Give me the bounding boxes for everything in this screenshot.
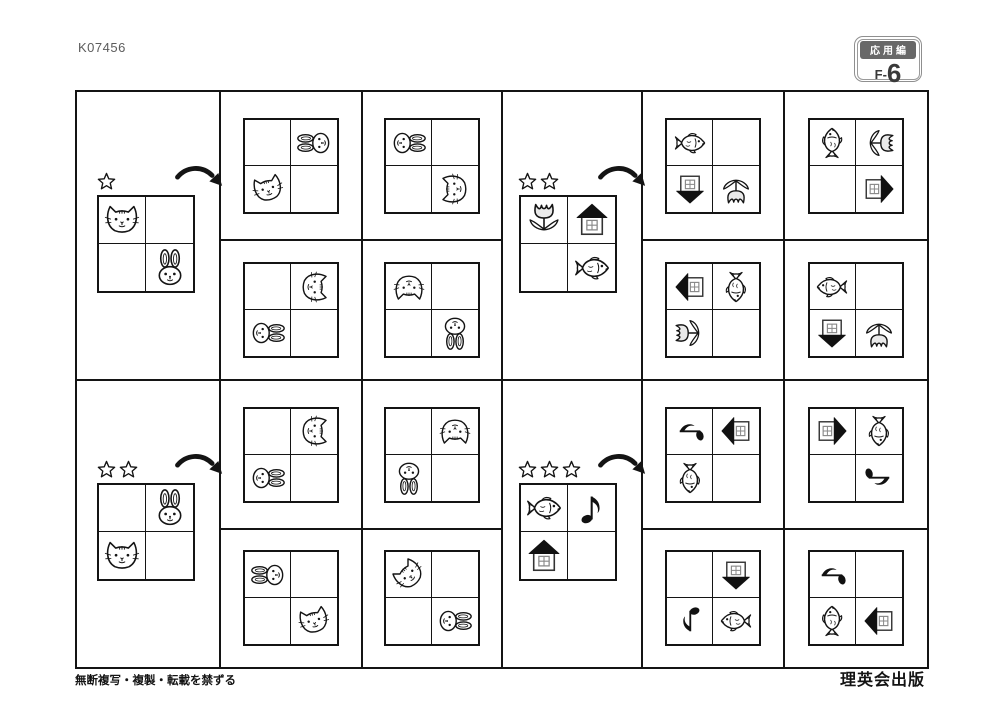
rabbit-icon — [251, 558, 285, 592]
cat-icon — [438, 414, 472, 448]
puzzle-4-problem — [502, 380, 645, 668]
fish-icon — [673, 126, 707, 160]
answer-grid — [243, 407, 339, 503]
worksheet-code: K07456 — [78, 40, 126, 55]
grid-cell — [99, 244, 146, 291]
answer-grid — [384, 550, 480, 646]
badge-level-number: 6 — [887, 58, 901, 88]
note-icon — [673, 604, 707, 638]
level-badge: 応用編 F-6 — [854, 36, 922, 82]
answer-grid — [519, 195, 617, 293]
grid-cell — [245, 310, 291, 356]
puzzle-2-option-4[interactable] — [784, 240, 927, 380]
grid-cell — [713, 120, 759, 166]
puzzle-3-option-1[interactable] — [220, 380, 362, 529]
fish-icon — [673, 461, 707, 495]
grid-cell — [432, 552, 478, 598]
answer-grid — [808, 118, 904, 214]
difficulty-stars — [97, 460, 138, 479]
grid-cell — [810, 120, 856, 166]
answer-grid — [243, 550, 339, 646]
answer-grid — [97, 483, 195, 581]
rotate-clockwise-arrow-icon — [174, 451, 226, 488]
grid-cell — [667, 310, 713, 356]
worksheet-grid — [75, 90, 929, 669]
grid-cell — [810, 264, 856, 310]
grid-cell — [386, 455, 432, 501]
badge-level-prefix: F- — [875, 67, 887, 82]
rabbit-icon — [151, 249, 189, 287]
house-icon — [815, 414, 849, 448]
house-icon — [673, 270, 707, 304]
cat-icon — [438, 172, 472, 206]
grid-cell — [713, 598, 759, 644]
grid-cell — [432, 598, 478, 644]
grid-cell — [856, 264, 902, 310]
grid-cell — [810, 598, 856, 644]
grid-cell — [386, 264, 432, 310]
puzzle-1-problem — [77, 92, 220, 380]
grid-cell — [386, 310, 432, 356]
grid-cell — [99, 532, 146, 579]
star-icon — [518, 172, 537, 191]
rabbit-icon — [251, 461, 285, 495]
grid-cell — [667, 120, 713, 166]
tulip-icon — [525, 201, 563, 239]
answer-grid — [808, 407, 904, 503]
rabbit-icon — [151, 489, 189, 527]
fish-icon — [862, 414, 896, 448]
badge-category-label: 応用編 — [860, 41, 916, 59]
puzzle-1-option-2[interactable] — [362, 92, 502, 240]
fish-icon — [815, 270, 849, 304]
grid-cell — [146, 532, 193, 579]
grid-cell — [432, 166, 478, 212]
grid-cell — [856, 409, 902, 455]
answer-grid — [808, 550, 904, 646]
note-icon — [862, 461, 896, 495]
grid-cell — [146, 197, 193, 244]
grid-cell — [432, 409, 478, 455]
grid-cell — [810, 166, 856, 212]
grid-cell — [521, 485, 568, 532]
answer-grid — [384, 118, 480, 214]
grid-cell — [856, 455, 902, 501]
grid-cell — [856, 120, 902, 166]
puzzle-2-option-2[interactable] — [784, 92, 927, 240]
star-icon — [540, 460, 559, 479]
grid-cell — [245, 120, 291, 166]
grid-cell — [713, 310, 759, 356]
grid-cell — [386, 120, 432, 166]
grid-cell — [667, 409, 713, 455]
rabbit-icon — [297, 126, 331, 160]
note-icon — [673, 414, 707, 448]
cat-icon — [297, 414, 331, 448]
cat-icon — [384, 550, 432, 598]
fish-icon — [719, 604, 753, 638]
answer-grid — [665, 118, 761, 214]
rabbit-icon — [392, 461, 426, 495]
grid-cell — [521, 244, 568, 291]
grid-cell — [667, 455, 713, 501]
fish-icon — [815, 604, 849, 638]
grid-cell — [291, 264, 337, 310]
puzzle-3-option-2[interactable] — [362, 380, 502, 529]
grid-cell — [432, 455, 478, 501]
cat-icon — [293, 600, 335, 642]
problem-grid — [519, 195, 617, 293]
grid-cell — [245, 166, 291, 212]
puzzle-2-problem — [502, 92, 645, 380]
grid-cell — [291, 598, 337, 644]
cat-icon — [103, 201, 141, 239]
rabbit-icon — [438, 316, 472, 350]
difficulty-stars — [518, 172, 559, 191]
grid-cell — [291, 409, 337, 455]
puzzle-1-option-3[interactable] — [220, 240, 362, 380]
grid-cell — [291, 310, 337, 356]
problem-grid — [97, 483, 195, 581]
house-icon — [573, 201, 611, 239]
house-icon — [862, 172, 896, 206]
grid-cell — [146, 244, 193, 291]
rabbit-icon — [438, 604, 472, 638]
problem-grid — [97, 195, 195, 293]
grid-cell — [667, 166, 713, 212]
cat-icon — [103, 537, 141, 575]
answer-grid — [665, 550, 761, 646]
grid-cell — [713, 455, 759, 501]
grid-cell — [856, 310, 902, 356]
cat-icon — [392, 270, 426, 304]
difficulty-stars — [97, 172, 116, 191]
house-icon — [862, 604, 896, 638]
publisher-name: 理英会出版 — [840, 666, 925, 690]
answer-grid — [97, 195, 195, 293]
house-icon — [719, 558, 753, 592]
grid-cell — [810, 310, 856, 356]
house-icon — [673, 172, 707, 206]
grid-cell — [856, 166, 902, 212]
grid-cell — [568, 244, 615, 291]
copyright-notice: 無断複写・複製・転載を禁ずる — [75, 672, 236, 688]
house-icon — [815, 316, 849, 350]
house-icon — [719, 414, 753, 448]
puzzle-4-option-1[interactable] — [642, 380, 784, 529]
grid-cell — [245, 264, 291, 310]
rotate-clockwise-arrow-icon — [174, 163, 226, 200]
fish-icon — [719, 270, 753, 304]
grid-cell — [291, 552, 337, 598]
star-icon — [119, 460, 138, 479]
puzzle-4-option-3[interactable] — [642, 529, 784, 667]
badge-level-label: F-6 — [855, 60, 921, 86]
grid-cell — [245, 409, 291, 455]
puzzle-3-option-3[interactable] — [220, 529, 362, 667]
grid-cell — [386, 598, 432, 644]
puzzle-1-option-4[interactable] — [362, 240, 502, 380]
star-icon — [562, 460, 581, 479]
cat-icon — [247, 168, 289, 210]
problem-grid — [519, 483, 617, 581]
answer-grid — [243, 118, 339, 214]
grid-cell — [713, 264, 759, 310]
grid-cell — [291, 120, 337, 166]
grid-cell — [245, 598, 291, 644]
grid-cell — [810, 552, 856, 598]
puzzle-3-option-4[interactable] — [362, 529, 502, 667]
answer-grid — [519, 483, 617, 581]
tulip-icon — [719, 172, 753, 206]
grid-cell — [667, 598, 713, 644]
grid-cell — [99, 485, 146, 532]
grid-cell — [432, 120, 478, 166]
grid-cell — [667, 264, 713, 310]
grid-cell — [146, 485, 193, 532]
grid-cell — [568, 485, 615, 532]
puzzle-4-option-2[interactable] — [784, 380, 927, 529]
answer-grid — [243, 262, 339, 358]
answer-grid — [665, 407, 761, 503]
difficulty-stars — [518, 460, 581, 479]
worksheet-page: K07456 応用編 F-6 — [0, 0, 1000, 707]
grid-cell — [386, 166, 432, 212]
puzzle-3-problem — [77, 380, 220, 668]
grid-cell — [810, 455, 856, 501]
grid-cell — [521, 532, 568, 579]
answer-grid — [384, 262, 480, 358]
note-icon — [573, 489, 611, 527]
fish-icon — [815, 126, 849, 160]
grid-cell — [713, 409, 759, 455]
house-icon — [525, 537, 563, 575]
grid-cell — [99, 197, 146, 244]
rabbit-icon — [392, 126, 426, 160]
grid-cell — [432, 310, 478, 356]
grid-cell — [713, 552, 759, 598]
grid-cell — [810, 409, 856, 455]
grid-cell — [245, 455, 291, 501]
grid-cell — [713, 166, 759, 212]
grid-cell — [856, 552, 902, 598]
puzzle-4-option-4[interactable] — [784, 529, 927, 667]
grid-cell — [245, 552, 291, 598]
tulip-icon — [673, 316, 707, 350]
rabbit-icon — [251, 316, 285, 350]
puzzle-2-option-3[interactable] — [642, 240, 784, 380]
grid-cell — [568, 532, 615, 579]
star-icon — [97, 172, 116, 191]
grid-cell — [291, 455, 337, 501]
grid-cell — [432, 264, 478, 310]
answer-grid — [808, 262, 904, 358]
cat-icon — [297, 270, 331, 304]
grid-cell — [667, 552, 713, 598]
puzzle-2-option-1[interactable] — [642, 92, 784, 240]
grid-cell — [856, 598, 902, 644]
star-icon — [518, 460, 537, 479]
note-icon — [815, 558, 849, 592]
fish-icon — [573, 249, 611, 287]
fish-icon — [525, 489, 563, 527]
grid-cell — [291, 166, 337, 212]
grid-cell — [386, 409, 432, 455]
tulip-icon — [862, 316, 896, 350]
grid-cell — [521, 197, 568, 244]
grid-cell — [568, 197, 615, 244]
answer-grid — [384, 407, 480, 503]
tulip-icon — [862, 126, 896, 160]
answer-grid — [665, 262, 761, 358]
star-icon — [97, 460, 116, 479]
star-icon — [540, 172, 559, 191]
puzzle-1-option-1[interactable] — [220, 92, 362, 240]
grid-cell — [386, 552, 432, 598]
